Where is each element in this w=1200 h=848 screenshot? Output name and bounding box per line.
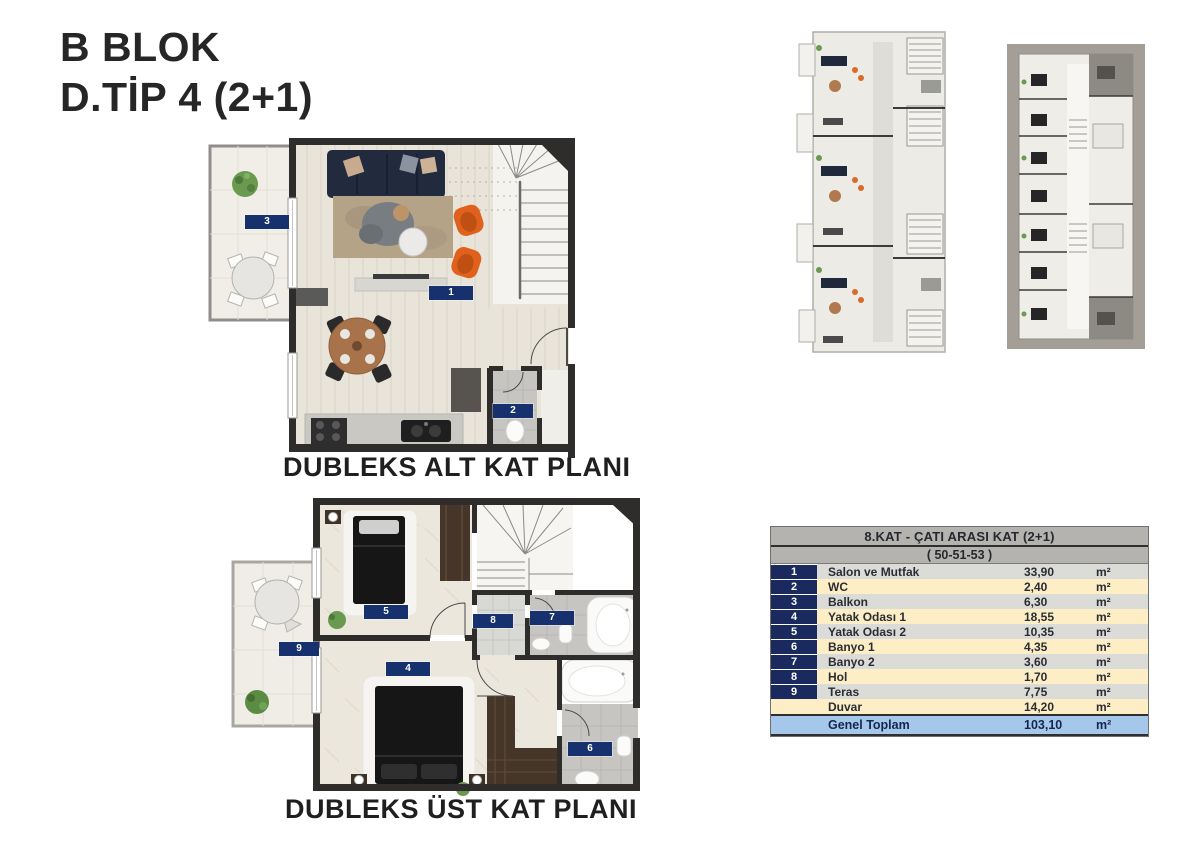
toilet-icon	[559, 624, 572, 643]
page-title: B BLOK D.TİP 4 (2+1)	[60, 22, 313, 122]
row-value: 33,90	[1024, 565, 1096, 579]
bathroom2	[530, 595, 640, 655]
table-total-row: Genel Toplam 103,10 m²	[771, 714, 1148, 736]
table-row: 1 Salon ve Mutfak 33,90 m²	[771, 564, 1148, 579]
row-value: 6,30	[1024, 595, 1096, 609]
row-value: 1,70	[1024, 670, 1096, 684]
overview-plan-1-drawing	[795, 18, 965, 368]
room-badge-banyo2: 7	[530, 611, 574, 625]
sofa	[327, 150, 445, 198]
room-badge-hol: 8	[473, 614, 513, 628]
row-number: 4	[771, 609, 817, 624]
double-bed	[351, 676, 485, 788]
total-label: Genel Toplam	[771, 718, 1024, 732]
row-label: Banyo 1	[817, 640, 1024, 654]
row-number: 5	[771, 624, 817, 639]
overview-plan-2	[993, 24, 1161, 372]
room-badge-salon: 1	[429, 286, 473, 300]
wardrobe	[440, 505, 470, 581]
balcony	[210, 146, 297, 320]
row-number: 1	[771, 564, 817, 579]
row-unit: m²	[1096, 640, 1148, 654]
total-unit: m²	[1096, 718, 1148, 732]
room-badge-balkon: 3	[245, 215, 289, 229]
upper-plan-caption: DUBLEKS ÜST KAT PLANI	[285, 794, 637, 825]
row-label: Duvar	[817, 700, 1024, 714]
row-unit: m²	[1096, 580, 1148, 594]
toilet-icon	[617, 736, 631, 756]
room-badge-banyo1: 6	[568, 742, 612, 756]
lower-floor-plan: 3 1 2	[205, 138, 575, 458]
table-row: 6 Banyo 1 4,35 m²	[771, 639, 1148, 654]
plant-icon	[328, 611, 346, 629]
total-value: 103,10	[1024, 718, 1096, 732]
row-label: Balkon	[817, 595, 1024, 609]
row-value: 18,55	[1024, 610, 1096, 624]
toilet-icon	[506, 420, 524, 442]
row-number: 2	[771, 579, 817, 594]
kitchen-counter	[305, 414, 463, 446]
row-number: 3	[771, 594, 817, 609]
dining-table	[324, 314, 392, 383]
table-row: 7 Banyo 2 3,60 m²	[771, 654, 1148, 669]
balcony-plant-icon	[232, 171, 258, 197]
table-row-duvar: Duvar 14,20 m²	[771, 699, 1148, 714]
area-table: 8.KAT - ÇATI ARASI KAT (2+1) ( 50-51-53 …	[770, 526, 1149, 737]
table-header: 8.KAT - ÇATI ARASI KAT (2+1)	[771, 527, 1148, 547]
row-value: 14,20	[1024, 700, 1096, 714]
row-number: 6	[771, 639, 817, 654]
row-unit: m²	[1096, 655, 1148, 669]
room-badge-yatak1: 4	[386, 662, 430, 676]
staircase-upper	[477, 505, 638, 590]
row-value: 7,75	[1024, 685, 1096, 699]
row-number: 9	[771, 684, 817, 699]
table-row: 2 WC 2,40 m²	[771, 579, 1148, 594]
terrace-table	[252, 576, 303, 632]
table-row: 9 Teras 7,75 m²	[771, 684, 1148, 699]
terrace-plant-icon	[245, 690, 269, 714]
row-number: 7	[771, 654, 817, 669]
row-number: 8	[771, 669, 817, 684]
bathroom1	[562, 660, 638, 791]
cabinet	[294, 288, 328, 306]
room-badge-wc: 2	[493, 404, 533, 418]
row-value: 3,60	[1024, 655, 1096, 669]
row-value: 10,35	[1024, 625, 1096, 639]
upper-floor-plan: 5 4 8 7 6 9	[225, 498, 645, 798]
row-label: Salon ve Mutfak	[817, 565, 1024, 579]
row-label: Banyo 2	[817, 655, 1024, 669]
table-row: 3 Balkon 6,30 m²	[771, 594, 1148, 609]
row-number	[771, 699, 817, 714]
row-unit: m²	[1096, 610, 1148, 624]
row-label: Hol	[817, 670, 1024, 684]
room-badge-teras: 9	[279, 642, 319, 656]
row-label: Teras	[817, 685, 1024, 699]
refrigerator	[451, 368, 481, 412]
row-unit: m²	[1096, 625, 1148, 639]
row-label: Yatak Odası 2	[817, 625, 1024, 639]
row-label: Yatak Odası 1	[817, 610, 1024, 624]
row-unit: m²	[1096, 670, 1148, 684]
row-value: 4,35	[1024, 640, 1096, 654]
overview-plan-1	[795, 18, 965, 368]
sink-icon	[532, 638, 550, 650]
row-label: WC	[817, 580, 1024, 594]
row-unit: m²	[1096, 565, 1148, 579]
row-value: 2,40	[1024, 580, 1096, 594]
room-badge-yatak2: 5	[364, 605, 408, 619]
lower-plan-caption: DUBLEKS ALT KAT PLANI	[283, 452, 630, 483]
table-row: 8 Hol 1,70 m²	[771, 669, 1148, 684]
overview-plan-2-drawing	[993, 24, 1161, 372]
table-subheader: ( 50-51-53 )	[771, 547, 1148, 564]
title-unit-type: D.TİP 4 (2+1)	[60, 72, 313, 122]
table-row: 4 Yatak Odası 1 18,55 m²	[771, 609, 1148, 624]
page: B BLOK D.TİP 4 (2+1)	[0, 0, 1200, 848]
title-block-name: B BLOK	[60, 22, 313, 72]
row-unit: m²	[1096, 685, 1148, 699]
table-row: 5 Yatak Odası 2 10,35 m²	[771, 624, 1148, 639]
row-unit: m²	[1096, 700, 1148, 714]
row-unit: m²	[1096, 595, 1148, 609]
